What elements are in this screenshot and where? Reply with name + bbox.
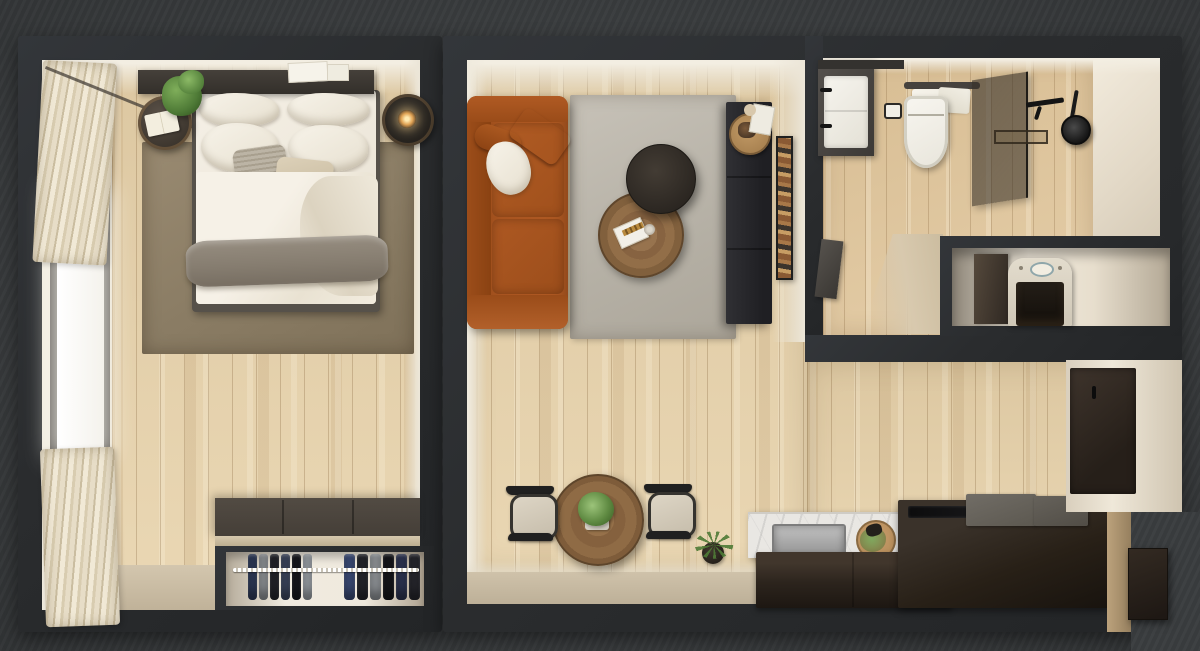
closet-rail <box>233 568 419 572</box>
bathroom-bottom-wall <box>805 335 1182 362</box>
leaning-art-print <box>776 136 793 280</box>
basin-divider <box>825 110 867 112</box>
sofa <box>467 96 568 329</box>
throw-blanket <box>185 234 388 287</box>
folded-garment <box>248 554 257 600</box>
washer-control-dial <box>1030 262 1054 277</box>
folded-garment <box>396 554 407 600</box>
door-handle <box>1092 386 1096 399</box>
drinking-glass <box>644 224 655 235</box>
tall-end-panel <box>1128 548 1168 620</box>
vanity-mirror-edge <box>818 60 904 69</box>
folded-garment <box>357 554 368 600</box>
cabinet-door-ajar <box>974 254 1008 324</box>
folded-garment <box>409 554 420 600</box>
wardrobe-door-seam <box>352 500 354 534</box>
table-lamp-glow <box>398 110 416 128</box>
papers-on-shelf-2 <box>327 64 349 81</box>
chair-frame-bottom <box>508 533 553 541</box>
bed-pillow <box>287 93 369 126</box>
washer-button <box>1058 266 1062 270</box>
basin-faucet <box>820 124 832 128</box>
plant-leaves <box>178 70 204 94</box>
folded-garment <box>370 554 381 600</box>
table-plant <box>578 492 614 526</box>
coffee-table-dark <box>626 144 696 214</box>
rain-shower-head <box>1061 115 1091 145</box>
washer-button <box>1019 266 1023 270</box>
bed-pillow <box>199 93 279 127</box>
wardrobe-front-edge <box>215 536 420 546</box>
toilet <box>904 96 948 168</box>
folded-garment <box>383 554 394 600</box>
floorplan-render <box>0 0 1200 651</box>
curtain-bottom <box>40 447 120 627</box>
sideboard-seam <box>727 248 771 250</box>
folded-garment <box>281 554 290 600</box>
basin-faucet <box>820 88 832 92</box>
toilet-paper-holder <box>884 103 902 119</box>
folded-garment <box>303 554 312 600</box>
wardrobe-door-seam <box>282 500 284 534</box>
vanity-basin <box>824 76 868 148</box>
folded-garment <box>344 554 355 600</box>
chair-frame-bottom <box>646 531 691 539</box>
appliance-lid <box>966 494 1036 526</box>
beige-ball-decor <box>744 104 756 116</box>
folded-clothes-left <box>248 554 314 600</box>
sofa-armrest-bottom <box>467 295 568 329</box>
folded-clothes-right <box>344 554 422 600</box>
living-top-wall-face <box>467 60 807 98</box>
sideboard-seam <box>727 176 771 178</box>
papers-on-shelf <box>288 61 329 83</box>
wardrobe-top <box>215 498 420 538</box>
toilet-lid-line <box>908 114 944 116</box>
sofa-seat-cushion <box>492 219 564 294</box>
counter-seam <box>852 553 854 607</box>
folded-garment <box>292 554 301 600</box>
entrance-door <box>1070 368 1136 494</box>
linear-drain <box>994 130 1048 144</box>
washer-door-opening <box>1016 282 1064 326</box>
folded-garment <box>259 554 268 600</box>
folded-garment <box>270 554 279 600</box>
